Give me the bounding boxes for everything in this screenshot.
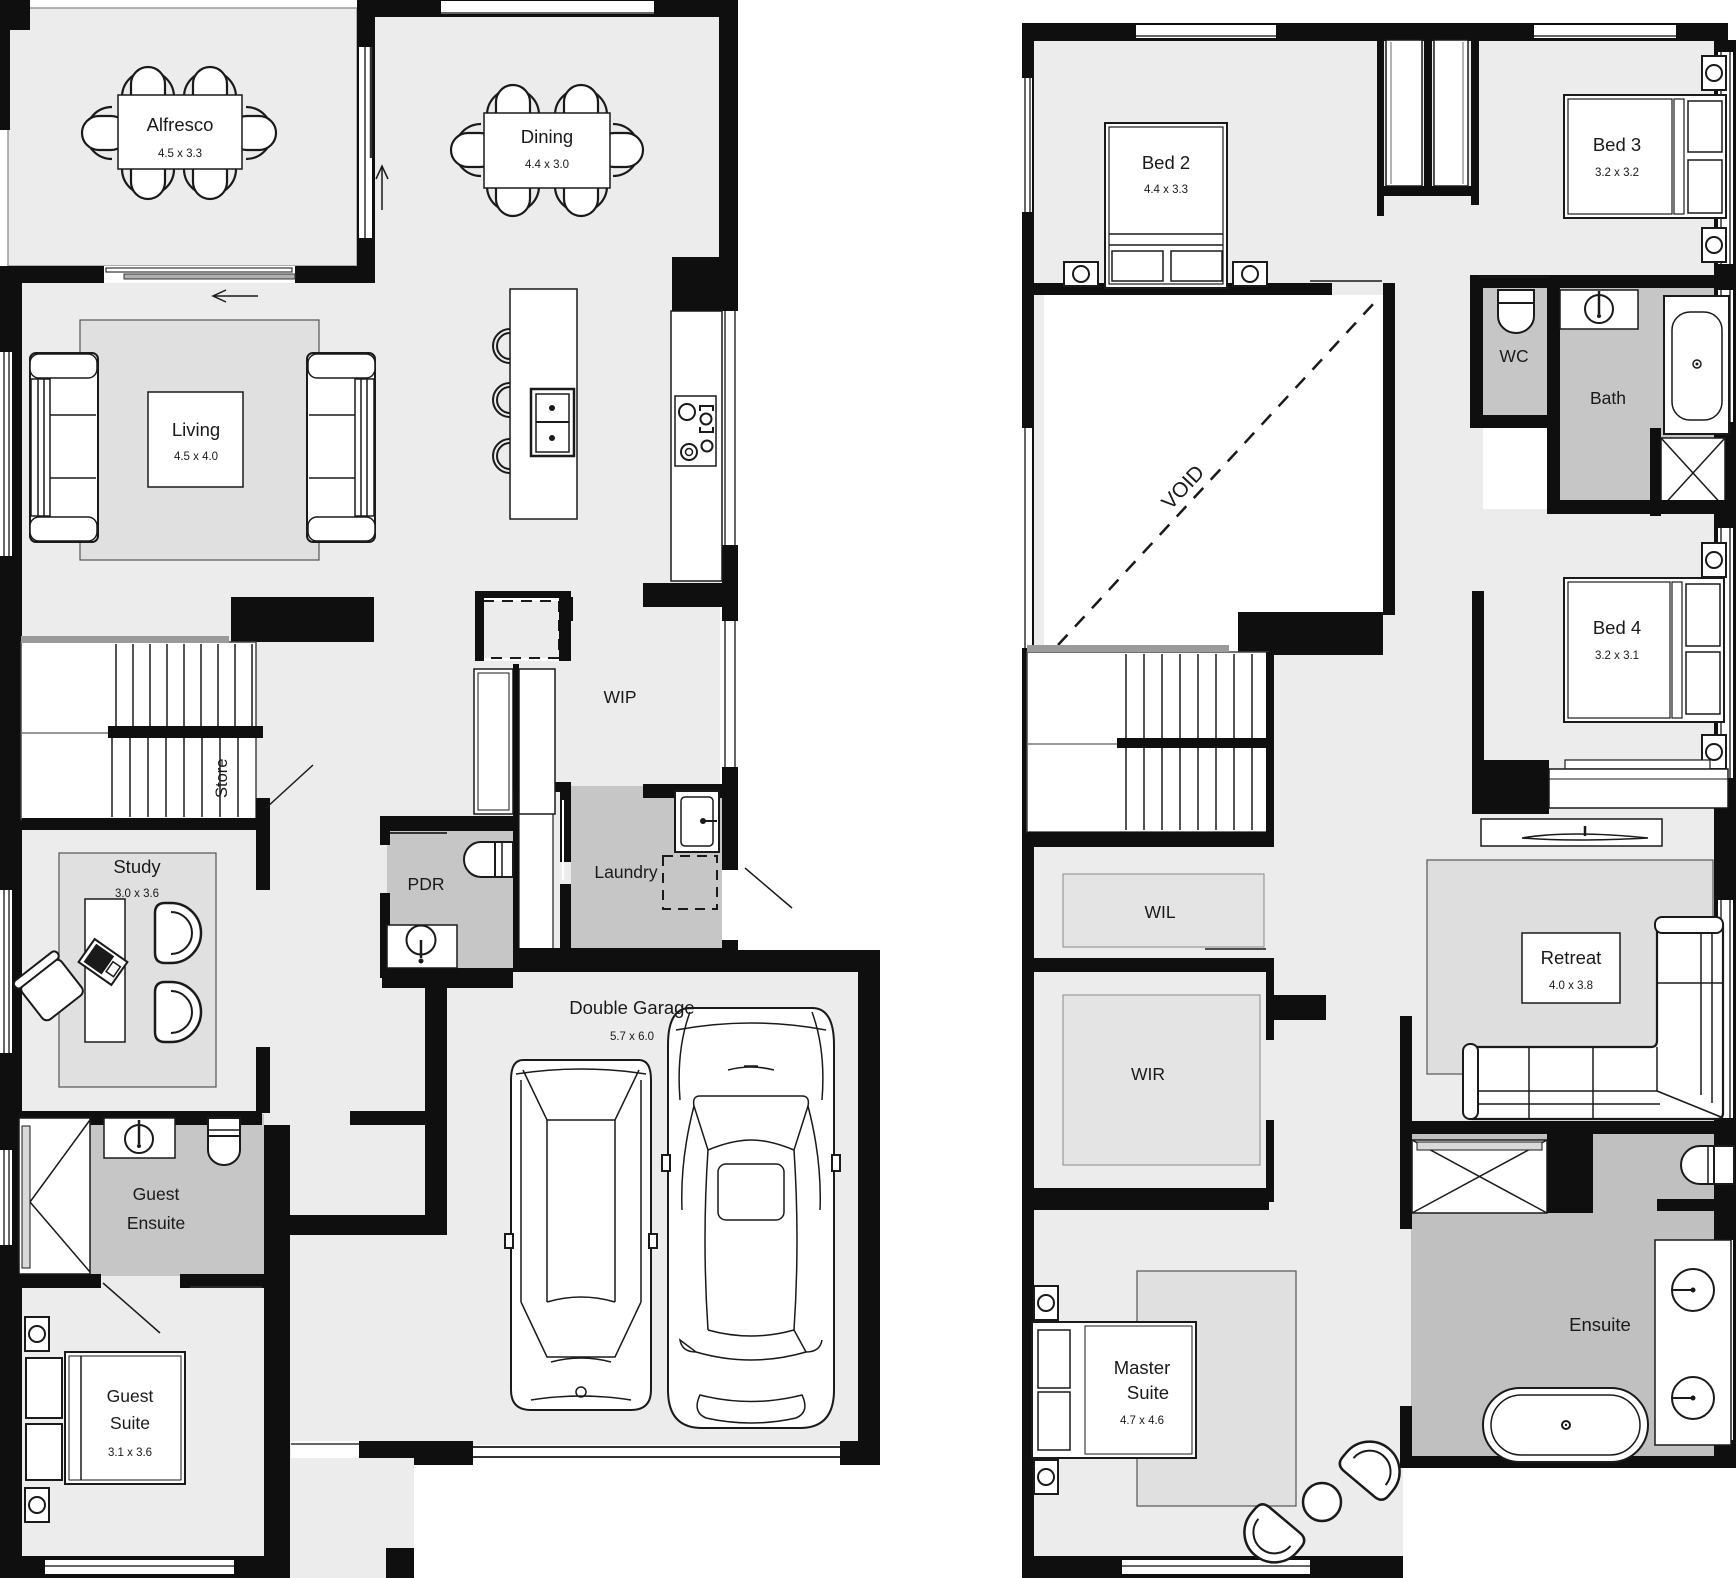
svg-text:Living: Living xyxy=(172,419,220,440)
svg-text:5.7 x 6.0: 5.7 x 6.0 xyxy=(610,1031,654,1043)
svg-text:3.1 x 3.6: 3.1 x 3.6 xyxy=(108,1447,152,1459)
svg-text:Store: Store xyxy=(213,759,231,798)
svg-text:3.2 x 3.1: 3.2 x 3.1 xyxy=(1595,650,1639,662)
svg-text:Suite: Suite xyxy=(1127,1382,1169,1403)
svg-text:Bath: Bath xyxy=(1590,388,1626,408)
svg-text:Suite: Suite xyxy=(110,1413,150,1433)
svg-text:Guest: Guest xyxy=(107,1386,154,1406)
svg-text:4.7 x 4.6: 4.7 x 4.6 xyxy=(1120,1415,1164,1427)
svg-text:4.5 x 3.3: 4.5 x 3.3 xyxy=(158,148,202,160)
svg-text:WIP: WIP xyxy=(603,687,636,707)
svg-text:Alfresco: Alfresco xyxy=(147,114,214,135)
svg-text:4.4 x 3.3: 4.4 x 3.3 xyxy=(1144,184,1188,196)
svg-text:4.4 x 3.0: 4.4 x 3.0 xyxy=(525,159,569,171)
svg-text:3.0 x 3.6: 3.0 x 3.6 xyxy=(115,888,159,900)
svg-text:PDR: PDR xyxy=(408,874,445,894)
svg-text:WC: WC xyxy=(1499,346,1528,366)
svg-text:Laundry: Laundry xyxy=(594,862,657,882)
svg-text:3.2 x 3.2: 3.2 x 3.2 xyxy=(1595,167,1639,179)
svg-text:Dining: Dining xyxy=(521,126,573,147)
svg-text:4.0 x 3.8: 4.0 x 3.8 xyxy=(1549,980,1593,992)
svg-text:Master: Master xyxy=(1114,1357,1171,1378)
svg-text:Study: Study xyxy=(113,856,161,877)
svg-text:Retreat: Retreat xyxy=(1541,947,1602,968)
svg-text:4.5 x 4.0: 4.5 x 4.0 xyxy=(174,451,218,463)
svg-text:Bed 4: Bed 4 xyxy=(1593,617,1641,638)
svg-text:Bed 2: Bed 2 xyxy=(1142,152,1190,173)
svg-text:WIR: WIR xyxy=(1131,1064,1165,1084)
svg-text:Ensuite: Ensuite xyxy=(127,1213,185,1233)
svg-text:Bed 3: Bed 3 xyxy=(1593,134,1641,155)
svg-text:Guest: Guest xyxy=(133,1184,180,1204)
svg-text:Ensuite: Ensuite xyxy=(1569,1314,1631,1335)
svg-text:WIL: WIL xyxy=(1144,902,1175,922)
svg-text:Double Garage: Double Garage xyxy=(569,997,694,1018)
